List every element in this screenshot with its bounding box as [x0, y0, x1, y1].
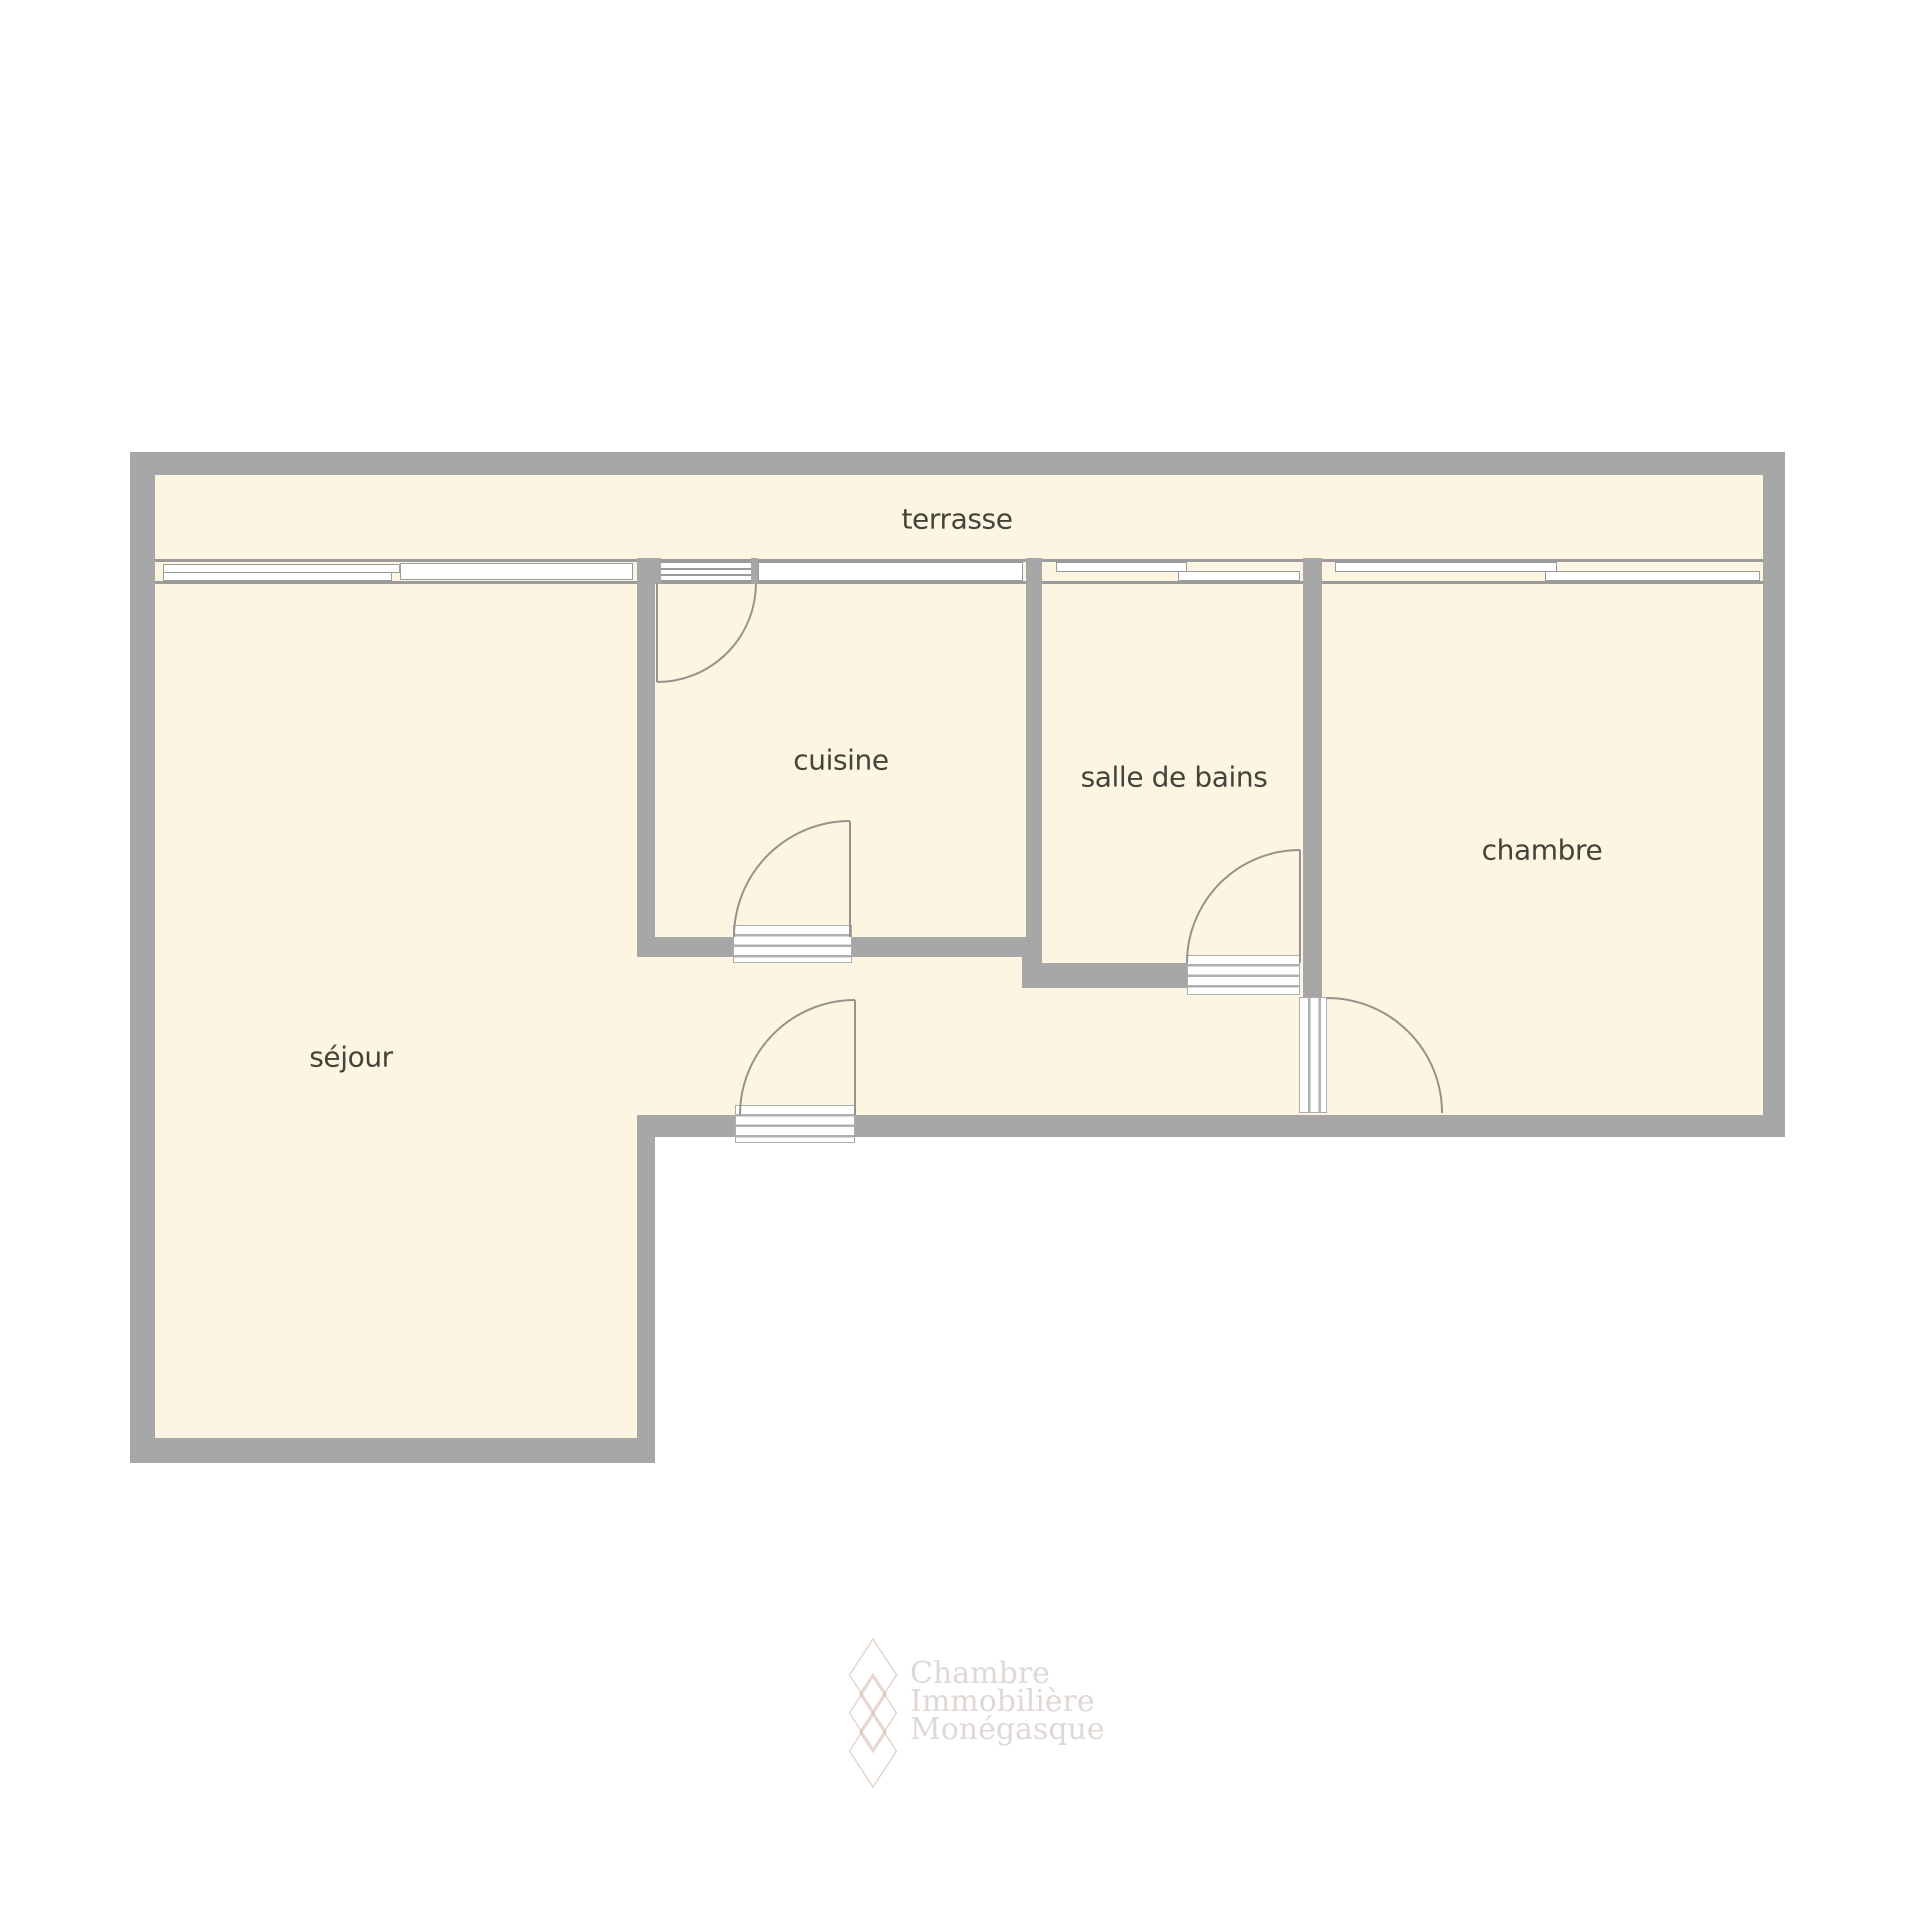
room-label-cuisine: cuisine — [793, 744, 888, 777]
terrace-edge-sdb-sill-line — [1042, 581, 1303, 584]
wall-hall-bottom-west — [637, 1115, 735, 1137]
window-sejour-pane-2 — [163, 572, 392, 581]
watermark-diamond-5 — [860, 1712, 886, 1752]
window-sdb-pane-2 — [1178, 571, 1300, 581]
french-door-jamb-2 — [751, 558, 758, 584]
room-label-sejour: séjour — [309, 1041, 393, 1074]
threshold-door-chambre — [1299, 997, 1327, 1113]
threshold-door-sdb — [1187, 955, 1300, 995]
room-label-chambre: chambre — [1482, 834, 1603, 867]
terrace-edge-cuisine-sill-line — [655, 581, 1026, 584]
terrace-edge-sejour-wall-line — [155, 559, 637, 562]
wall-outer-left — [130, 452, 155, 1463]
wall-cuisine-bottom-west — [637, 937, 733, 957]
wall-cuisine-bottom-east — [852, 937, 1026, 957]
wall-cuisine-sdb — [1026, 558, 1042, 963]
apartment-floor-area — [0, 0, 1920, 1920]
floorplan-canvas: terrassecuisinesalle de bainschambreséjo… — [0, 0, 1920, 1920]
window-chambre-pane-1 — [1335, 562, 1557, 572]
wall-sdb-chambre — [1303, 558, 1322, 997]
watermark-diamond-4 — [860, 1674, 886, 1714]
watermark-diamond-1 — [850, 1639, 897, 1711]
threshold-door-entrance — [735, 1105, 855, 1143]
french-door-rail-2 — [658, 574, 755, 576]
room-label-terrasse: terrasse — [901, 503, 1012, 536]
wall-sejour-cuisine — [637, 558, 655, 957]
terrace-edge-sejour-sill-line — [155, 581, 637, 584]
wall-sejour-right-lower — [637, 1115, 655, 1463]
room-label-salle-de-bains: salle de bains — [1081, 761, 1268, 794]
wall-sdb-bottom — [1042, 963, 1187, 988]
wall-sejour-bottom — [130, 1438, 655, 1463]
watermark-diamond-2 — [850, 1677, 897, 1749]
watermark-line-3: Monégasque — [910, 1716, 1105, 1744]
window-cuisine-pane — [758, 562, 1023, 581]
wall-hall-bottom-east — [855, 1115, 1785, 1137]
wall-outer-top — [130, 452, 1785, 475]
window-chambre-pane-2 — [1545, 571, 1760, 581]
threshold-door-cuisine — [733, 925, 852, 963]
terrace-edge-chambre-sill-line — [1322, 581, 1763, 584]
watermark-text: Chambre Immobilière Monégasque — [910, 1660, 1105, 1744]
window-sdb-pane-1 — [1056, 562, 1187, 572]
window-sejour-pane-3 — [400, 563, 633, 580]
wall-outer-right — [1763, 452, 1785, 1137]
french-door-rail-1 — [658, 568, 755, 570]
french-door-jamb-1 — [654, 558, 661, 584]
window-french-door-cuisine — [658, 562, 755, 581]
watermark-diamond-3 — [850, 1715, 897, 1787]
